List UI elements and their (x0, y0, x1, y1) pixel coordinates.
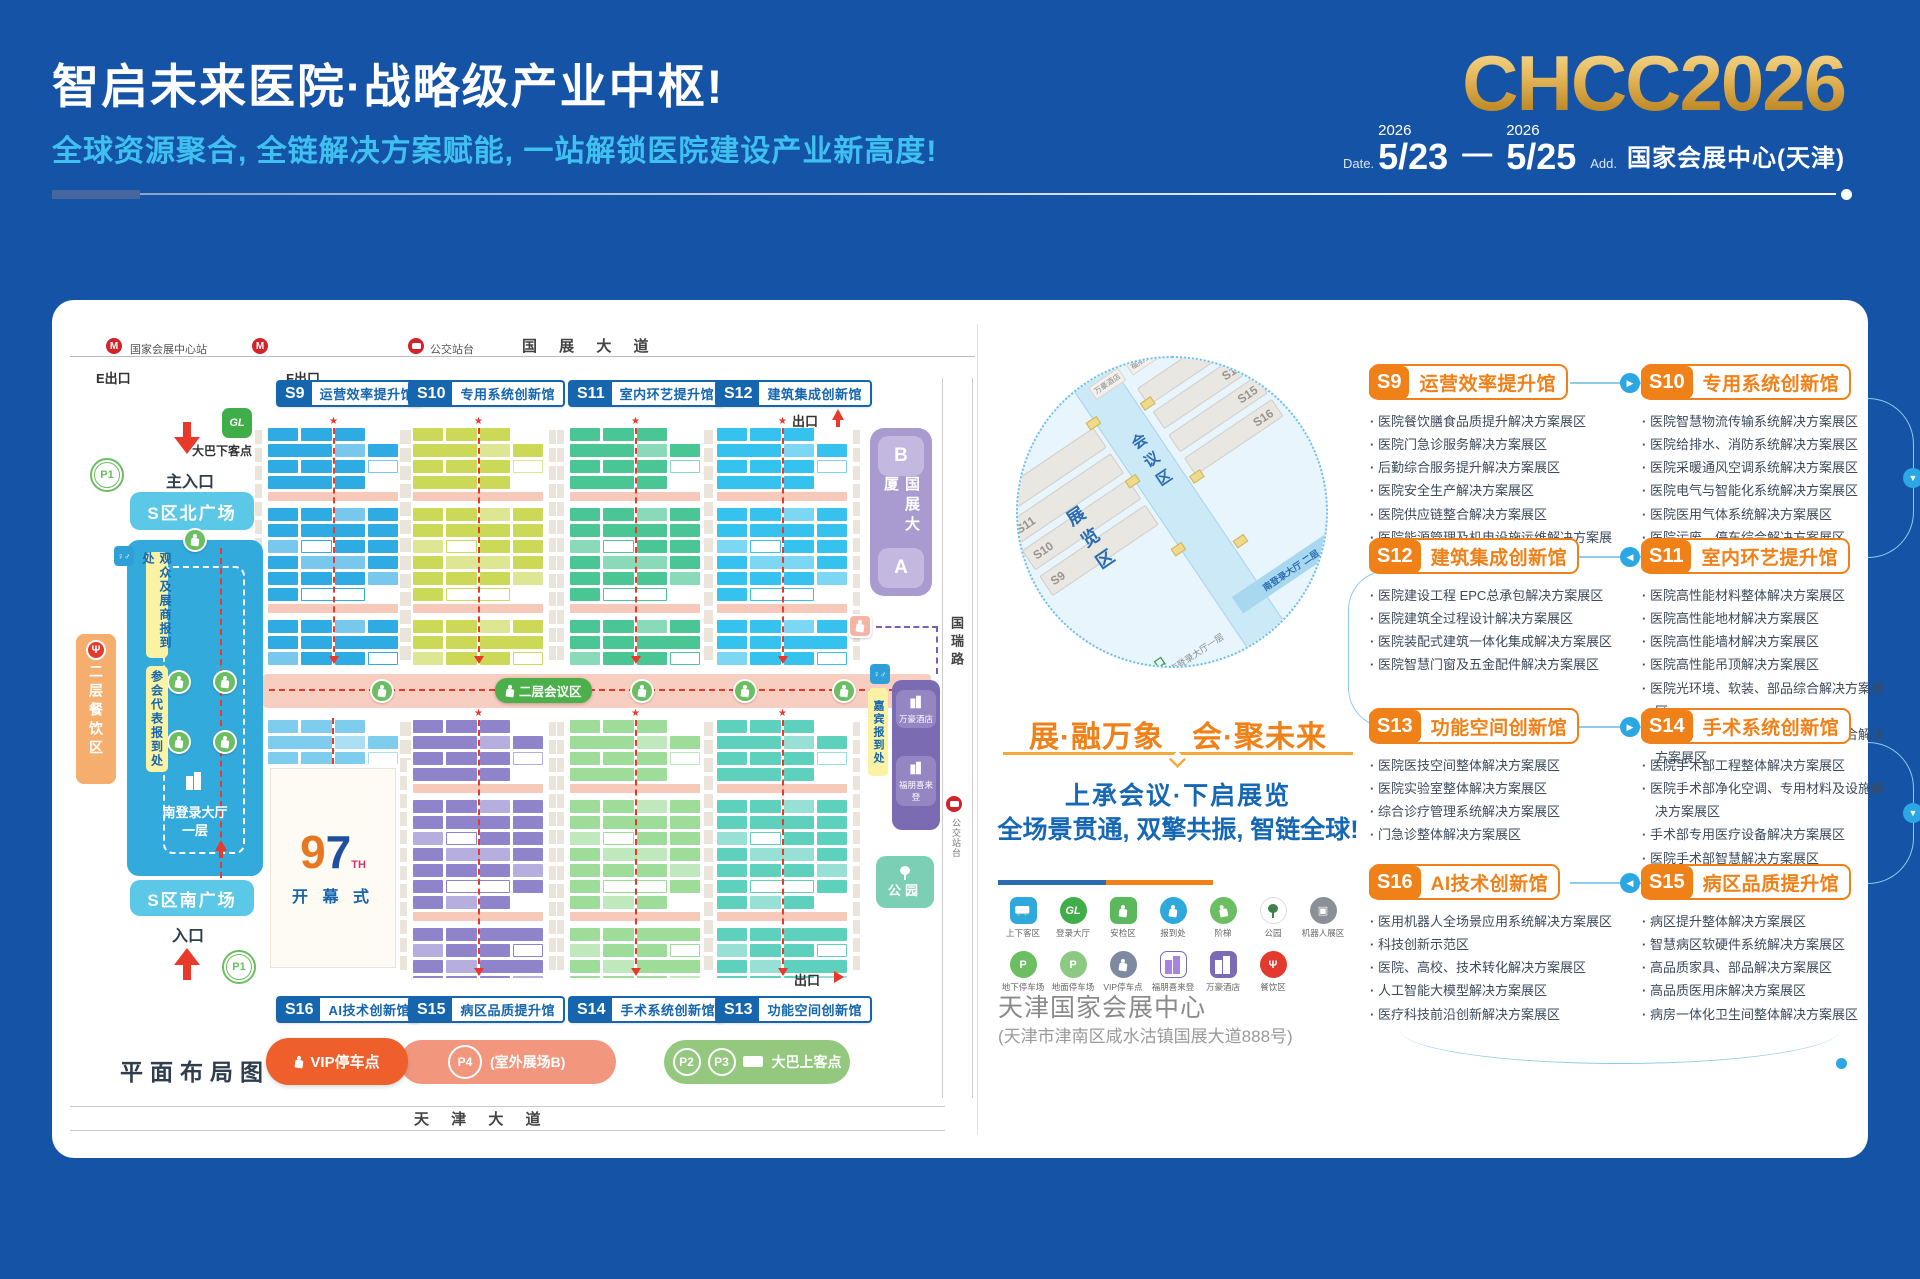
booth-block (413, 848, 443, 861)
hall-chip-id: S13 (717, 998, 759, 1021)
bus-stop-label: 公交站台 (430, 341, 474, 357)
flow-arrow-right: ▶ (1620, 717, 1640, 737)
south-entrance-label: 入口 (172, 922, 204, 946)
hall-item: 医院建设工程 EPC总承包解决方案展区 (1370, 584, 1622, 607)
booth-block (268, 736, 332, 749)
legend-bar (998, 880, 1213, 885)
booth-block (637, 800, 667, 813)
hall-item: 医院智慧物流传输系统解决方案展区 (1642, 410, 1894, 433)
booth-block (413, 960, 443, 973)
hall-chip-s9: S9 运营效率提升馆 (276, 380, 424, 407)
escalator-icon (213, 670, 237, 694)
booth-block (570, 976, 600, 978)
booth-block (670, 572, 700, 585)
main-entrance-label: 主入口 (166, 468, 214, 492)
bus-drop-icon: GL (222, 408, 252, 438)
venue-aerial-map: S12S11S10S9 会议区 S13S14S15S16 展览区 万豪酒店 福朋… (1016, 356, 1328, 668)
booth-block (750, 620, 780, 633)
booth-block (817, 864, 847, 877)
booth-block (301, 572, 331, 585)
booth-block (784, 540, 814, 553)
aisle-route (333, 428, 335, 662)
booth-block (570, 848, 600, 861)
booth-block (268, 588, 298, 601)
page-title: 智启未来医院·战略级产业中枢! (52, 48, 724, 117)
booth-block (603, 960, 633, 973)
hall-item: 医院医用气体系统解决方案展区 (1642, 503, 1894, 526)
booth-block (413, 508, 443, 521)
booth-block (480, 428, 510, 441)
south-road-line (70, 1106, 945, 1107)
north-plaza: S区北广场 (130, 492, 254, 530)
dining-2f-label: 二层餐饮区 (86, 664, 106, 759)
booth-block (670, 444, 700, 457)
parking-p1-icon: P1 (90, 458, 124, 492)
booth-block (570, 880, 600, 893)
booth-block (784, 652, 814, 665)
booth-block (750, 428, 780, 441)
flow-arrow-down: ▼ (1903, 803, 1920, 823)
venue-address: (天津市津南区咸水沽镇国展大道888号) (998, 1022, 1293, 1047)
booth-block (637, 540, 667, 553)
booth-block (513, 572, 543, 585)
booth-block (335, 636, 399, 649)
booth-block (750, 896, 780, 909)
booth-block (570, 524, 600, 537)
booth-block (750, 928, 780, 941)
header-divider (52, 190, 1852, 202)
booth-block (268, 572, 298, 585)
booth-block (413, 444, 477, 457)
booth-block (413, 832, 443, 845)
booth-block (446, 896, 476, 909)
booth-block (513, 832, 543, 845)
booth-block (413, 428, 443, 441)
booth-block (335, 720, 365, 733)
booth-block (570, 572, 600, 585)
hall-name: 建筑集成创新馆 (1421, 543, 1578, 570)
central-corridor (263, 674, 931, 708)
booth-block (368, 736, 398, 749)
bus-stop-icon (946, 796, 962, 812)
dropoff-icon (1010, 897, 1037, 924)
booth-block (817, 736, 847, 749)
conference-2f-pill: 二层会议区 (495, 678, 592, 703)
legend-marriott: 万豪酒店 (1198, 951, 1248, 993)
metro-icon: M (252, 338, 268, 354)
booth-block (268, 476, 332, 489)
booth-block (513, 864, 543, 877)
booth-block (368, 444, 398, 457)
booth-block (413, 928, 443, 941)
metro-station-label: 国家会展中心站 (130, 341, 207, 357)
booth-block (301, 620, 331, 633)
p3-icon: P3 (708, 1048, 736, 1076)
booth-block (603, 896, 633, 909)
booth-block (637, 444, 667, 457)
addr-label: Add. (1590, 156, 1617, 171)
booth-block (637, 896, 667, 909)
booth-block (413, 752, 443, 765)
booth-block (717, 460, 747, 473)
booth-block (670, 652, 700, 665)
booth-block (717, 540, 747, 553)
booth-block (480, 768, 510, 781)
booth-block (717, 476, 781, 489)
booth-block (513, 800, 543, 813)
divider-stub (52, 190, 140, 199)
booth-block (570, 508, 600, 521)
hall-item: 人工智能大模型解决方案展区 (1370, 979, 1622, 1002)
hall-chip-id: S11 (570, 382, 612, 405)
page-subtitle: 全球资源聚合, 全链解决方案赋能, 一站解锁医院建设产业新高度! (52, 126, 937, 170)
booth-block (784, 720, 814, 733)
booth-block (784, 460, 814, 473)
booth-block (413, 652, 443, 665)
booth-block (603, 636, 633, 649)
p2-icon: P2 (673, 1048, 701, 1076)
booth-block (446, 428, 476, 441)
booth-block (603, 944, 633, 957)
main-card: M 国家会展中心站 M 公交站台 国 展 大 道 E出口 F出口 S9 运营效率… (52, 300, 1868, 1158)
aisle-route (782, 428, 784, 662)
legend-lobby: GL登录大厅 (1048, 897, 1098, 939)
p4-parking-pill: P4 (室外展场B) (400, 1040, 616, 1084)
booth-block (570, 444, 634, 457)
hall-name: 运营效率提升馆 (1409, 369, 1566, 396)
hall-chip-s14: S14 手术系统创新馆 (568, 996, 725, 1023)
booth-block (817, 944, 847, 957)
booth-block (268, 428, 298, 441)
booth-block (368, 556, 398, 569)
escalator-icon (167, 670, 191, 694)
hall-item: 医院医技空间整体解决方案展区 (1370, 754, 1622, 777)
booth-block (301, 508, 331, 521)
hall-chip-name: 专用系统创新馆 (452, 382, 563, 405)
booth-block (335, 752, 365, 764)
chcc-logo: CHCC2026 (1462, 38, 1845, 129)
booth-block (480, 460, 510, 473)
booth-block (670, 460, 700, 473)
booth-block (446, 800, 476, 813)
booth-block (717, 864, 747, 877)
booth-block (717, 800, 747, 813)
booth-block (446, 864, 476, 877)
booth-block (368, 524, 398, 537)
booth-block (513, 524, 543, 537)
hall-item: 医院手术部净化空调、专用材料及设施解决方案展区 (1642, 777, 1894, 823)
booth-block (413, 636, 443, 649)
aisle-route (635, 720, 637, 974)
booth-block (335, 620, 365, 633)
hall-item: 综合诊疗管理系统解决方案展区 (1370, 800, 1622, 823)
hall-chip-name: 功能空间创新馆 (759, 998, 870, 1021)
hotel-block: 万豪酒店 福朋喜来登 (892, 680, 940, 830)
date-row: Date. 2026 5/23 — 2026 5/25 Add. 国家会展中心(… (1343, 122, 1845, 175)
bus-drop-label: 大巴下客点 (192, 442, 252, 459)
aisle-route (478, 428, 480, 662)
pedestrian-icon (370, 679, 394, 703)
booth-block (817, 444, 847, 457)
hotel-icon (910, 696, 923, 709)
booth-block (717, 636, 747, 649)
booth-block (637, 832, 667, 845)
hall-s14-booths (568, 718, 702, 978)
booth-block (570, 556, 600, 569)
booth-block (480, 508, 510, 521)
legend-surface-parking: P地面停车场 (1048, 951, 1098, 993)
park-label: 公园 (888, 880, 922, 899)
south-lobby-floor: 一层 (127, 820, 263, 839)
booth-block (368, 508, 398, 521)
booth-block (413, 588, 443, 601)
overview-panel: S12S11S10S9 会议区 S13S14S15S16 展览区 万豪酒店 福朋… (988, 320, 1368, 1138)
booth-block (670, 976, 700, 978)
booth-block (670, 540, 700, 553)
booth-block (446, 752, 476, 765)
booth-block (750, 460, 780, 473)
booth-block (750, 976, 780, 978)
booth-block (446, 460, 476, 473)
hall-directory: ▶ ◀ ▶ ◀ ▼ ▼ S9运营效率提升馆 医院餐饮膳食品质提升解决方案展区医院… (1370, 358, 1890, 1138)
booth-block (784, 508, 814, 521)
hall-item: 智慧病区软硬件系统解决方案展区 (1642, 933, 1894, 956)
hall-item: 病房一体化卫生间整体解决方案展区 (1642, 1003, 1894, 1026)
booth-block (446, 976, 476, 978)
flow-arrow-right: ▶ (1620, 373, 1640, 393)
hall-item: 高品质家具、部品解决方案展区 (1642, 956, 1894, 979)
booth-block (784, 736, 814, 749)
booth-block (480, 832, 510, 845)
panel-sub1: 上承会议·下启展览 (988, 776, 1368, 812)
booth-block (513, 540, 543, 553)
booth-block (750, 944, 780, 957)
booth-block (301, 652, 331, 665)
legend-fourpoints: 福朋喜来登 (1148, 951, 1198, 993)
booth-block (268, 752, 298, 764)
booth-block (817, 540, 847, 553)
hall-name: AI技术创新馆 (1421, 869, 1559, 896)
vip-parking-label: VIP停车点 (310, 1051, 379, 1072)
booth-block (413, 944, 443, 957)
booth-block (446, 944, 476, 957)
booth-block (784, 476, 814, 489)
hotel-icon (910, 762, 923, 775)
booth-block (570, 636, 600, 649)
booth-block (335, 540, 365, 553)
hall-item: 高品质医用床解决方案展区 (1642, 979, 1894, 1002)
opening-ceremony-box: 97TH 开 幕 式 (270, 768, 396, 968)
booth-block (413, 540, 443, 553)
booth-block (750, 636, 780, 649)
exit-bottom-label: 出口 (794, 970, 820, 989)
hall-id: S15 (1641, 866, 1693, 899)
fourpoints-icon (1160, 951, 1187, 978)
route-dashed (332, 718, 334, 764)
marriott-hotel: 万豪酒店 (896, 690, 936, 728)
hall-item: 科技创新示范区 (1370, 933, 1622, 956)
conference-2f-label: 二层会议区 (519, 681, 582, 700)
booth-block (513, 848, 543, 861)
booth-block (750, 800, 780, 813)
booth-block (603, 720, 633, 733)
hall-chip-name: 病区品质提升馆 (452, 998, 563, 1021)
booth-block (570, 928, 600, 941)
legend-underground-parking: P地下停车场 (998, 951, 1048, 993)
booth-block (413, 816, 443, 829)
aisle-route (635, 428, 637, 662)
hall-item: 医院装配式建筑一体化集成解决方案展区 (1370, 630, 1622, 653)
booth-block (817, 620, 847, 633)
hall-card-s14: S14手术系统创新馆 医院手术部工程整体解决方案展区医院手术部净化空调、专用材料… (1642, 708, 1894, 870)
booth-block (717, 816, 747, 829)
dining-2f-block: Ψ 二层餐饮区 (76, 634, 116, 784)
booth-block (784, 928, 848, 941)
fourpoints-hotel: 福朋喜来登 (896, 756, 936, 806)
booth-block (750, 752, 780, 765)
restroom-icon: ♀♂ (870, 664, 890, 684)
booth-block (513, 508, 543, 521)
exit-top-arrow (832, 409, 844, 420)
booth-block (637, 572, 667, 585)
booth-block (446, 960, 476, 973)
surface-parking-icon: P (1060, 951, 1087, 978)
booth-block (570, 832, 600, 845)
booth-block (480, 800, 510, 813)
metro-icon: M (106, 338, 122, 354)
booth-block (603, 428, 633, 441)
security-icon (1110, 897, 1137, 924)
hall-name: 功能空间创新馆 (1421, 713, 1578, 740)
hall-item: 后勤综合服务提升解决方案展区 (1370, 456, 1622, 479)
booth-block (784, 444, 814, 457)
booth-block (301, 460, 331, 473)
booth-block (717, 976, 747, 978)
booth-block (268, 460, 298, 473)
booth-block (717, 572, 747, 585)
hall-item: 医院实验室整体解决方案展区 (1370, 777, 1622, 800)
hall-item: 医院智慧门窗及五金配件解决方案展区 (1370, 653, 1622, 676)
gate-icon (183, 528, 207, 552)
south-plaza: S区南广场 (130, 880, 254, 916)
connector-arc (1400, 1030, 1840, 1064)
booth-block (637, 636, 701, 649)
hall-id: S16 (1369, 866, 1421, 899)
booth-block (446, 928, 476, 941)
booth-block (413, 572, 443, 585)
booth-block (570, 960, 600, 973)
hall-item: 手术部专用医疗设备解决方案展区 (1642, 823, 1894, 846)
exit-bottom-arrow (834, 971, 844, 983)
booth-block (570, 944, 600, 957)
hall-items: 医用机器人全场景应用系统解决方案展区科技创新示范区医院、高校、技术转化解决方案展… (1370, 910, 1622, 1026)
booth-block (480, 444, 510, 457)
hall-item: 医院、高校、技术转化解决方案展区 (1370, 956, 1622, 979)
booth-block (513, 816, 543, 829)
booth-block (750, 960, 780, 973)
hall-item: 医院电气与智能化系统解决方案展区 (1642, 479, 1894, 502)
booth-block (750, 572, 780, 585)
legend-park: 公园 (1248, 897, 1298, 939)
flow-arrow-left: ◀ (1620, 873, 1640, 893)
flow-arrow-down: ▼ (1903, 468, 1920, 488)
booth-block (513, 652, 543, 665)
escalator-icon (213, 730, 237, 754)
booth-block (784, 768, 814, 781)
vip-person-icon (294, 1056, 304, 1068)
booth-block (570, 816, 600, 829)
booth-block (717, 832, 747, 845)
booth-block (637, 428, 667, 441)
booth-block (570, 864, 600, 877)
booth-block (368, 460, 398, 473)
marriott-icon (1210, 951, 1237, 978)
booth-block (784, 800, 814, 813)
hall-items: 医院智慧物流传输系统解决方案展区医院给排水、消防系统解决方案展区医院采暖通风空调… (1642, 410, 1894, 549)
booth-block (670, 800, 700, 813)
booth-block (637, 768, 667, 781)
booth-block (603, 800, 633, 813)
booth-block (268, 508, 298, 521)
booth-block (784, 944, 814, 957)
booth-block (570, 620, 600, 633)
legend-registration: 报到处 (1148, 897, 1198, 939)
booth-block (446, 572, 476, 585)
icon-legend: 上下客区 GL登录大厅 安检区 报到处 阶梯 公园 ▣机器人展区 P地下停车场 … (998, 880, 1358, 993)
booth-block (784, 832, 814, 845)
booth-block (670, 816, 700, 829)
restroom-icon: ♀♂ (114, 546, 134, 566)
hall-card-s15: S15病区品质提升馆 病区提升整体解决方案展区智慧病区软硬件系统解决方案展区高品… (1642, 864, 1894, 1026)
booth-block (335, 460, 365, 473)
p4-note: (室外展场B) (490, 1052, 565, 1072)
hall-item: 病区提升整体解决方案展区 (1642, 910, 1894, 933)
booth-block (717, 620, 747, 633)
hall-id: S11 (1641, 540, 1691, 573)
hall-card-s13: S13功能空间创新馆 医院医技空间整体解决方案展区医院实验室整体解决方案展区综合… (1370, 708, 1622, 847)
booth-block (817, 752, 847, 765)
hall-id: S9 (1369, 366, 1409, 399)
slogan-underline (1003, 752, 1353, 762)
booth-block (750, 652, 780, 665)
booth-block (670, 864, 700, 877)
booth-block (750, 864, 780, 877)
hall-chip-name: AI技术创新馆 (320, 998, 418, 1021)
panel-slogan: 展·融万象 会·聚未来 (998, 712, 1358, 756)
hall-item: 医院采暖通风空调系统解决方案展区 (1642, 456, 1894, 479)
booth-block (480, 752, 510, 765)
pedestrian-icon (630, 679, 654, 703)
bus-icon (743, 1055, 765, 1070)
booth-block (413, 768, 477, 781)
booth-block (717, 848, 747, 861)
booth-block (513, 976, 543, 978)
booth-block (446, 832, 476, 845)
booth-block (717, 428, 747, 441)
venue-name-top: 国家会展中心(天津) (1627, 138, 1845, 173)
booth-block (480, 944, 510, 957)
road-east-line (972, 378, 973, 1098)
booth-block (784, 620, 814, 633)
booth-block (817, 800, 847, 813)
hall-card-s10: S10专用系统创新馆 医院智慧物流传输系统解决方案展区医院给排水、消防系统解决方… (1642, 364, 1894, 549)
booth-block (570, 540, 600, 553)
booth-block (480, 720, 510, 733)
vip-route-dashed (936, 626, 938, 674)
hall-item: 医院安全生产解决方案展区 (1370, 479, 1622, 502)
booth-block (784, 896, 814, 909)
pedestrian-icon (733, 679, 757, 703)
